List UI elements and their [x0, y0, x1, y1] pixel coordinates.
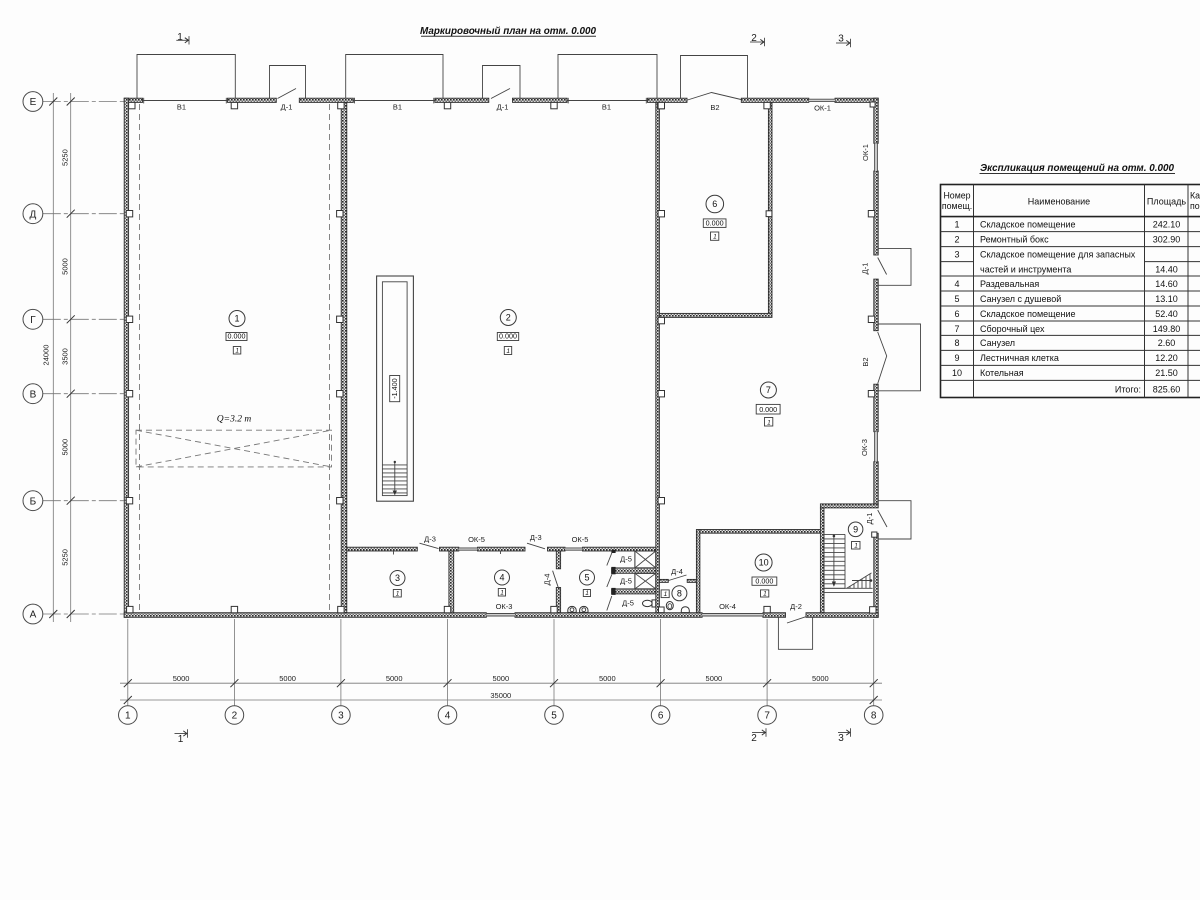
svg-text:Д-5: Д-5 [620, 554, 632, 563]
svg-text:Санузел: Санузел [980, 338, 1015, 348]
svg-text:Д: Д [30, 209, 37, 220]
svg-text:Раздевальная: Раздевальная [980, 279, 1039, 289]
svg-text:35000: 35000 [490, 691, 511, 700]
svg-text:Складское помещение для запасн: Складское помещение для запасных [980, 249, 1136, 259]
svg-text:В1: В1 [393, 103, 402, 112]
svg-text:В2: В2 [710, 103, 719, 112]
svg-text:14.40: 14.40 [1155, 264, 1178, 274]
svg-text:1: 1 [235, 347, 239, 354]
svg-text:Санузел с душевой: Санузел с душевой [980, 294, 1061, 304]
svg-text:10: 10 [952, 368, 962, 378]
svg-text:0.000: 0.000 [706, 219, 724, 228]
svg-text:2: 2 [751, 733, 757, 744]
svg-text:Д-4: Д-4 [671, 567, 683, 576]
svg-text:по: по [1190, 201, 1200, 211]
svg-text:ОК-4: ОК-4 [719, 602, 736, 611]
svg-text:-1.400: -1.400 [390, 378, 399, 398]
svg-text:Д-1: Д-1 [865, 513, 874, 525]
svg-text:2.60: 2.60 [1158, 338, 1176, 348]
svg-text:1: 1 [125, 711, 131, 722]
svg-text:помещ.: помещ. [942, 201, 972, 211]
svg-text:1: 1 [234, 314, 239, 324]
svg-text:5000: 5000 [386, 674, 403, 683]
svg-text:5250: 5250 [61, 149, 70, 166]
svg-text:Б: Б [30, 496, 37, 507]
svg-text:Q=3.2 т: Q=3.2 т [217, 415, 252, 425]
svg-text:5000: 5000 [492, 674, 509, 683]
svg-text:5000: 5000 [599, 674, 616, 683]
svg-text:825.60: 825.60 [1153, 385, 1181, 395]
svg-text:1: 1 [763, 590, 767, 597]
svg-text:ОК-5: ОК-5 [468, 535, 485, 544]
svg-text:Д-1: Д-1 [281, 103, 293, 112]
svg-text:В1: В1 [602, 103, 611, 112]
svg-text:ОК-5: ОК-5 [572, 535, 589, 544]
svg-text:Д-1: Д-1 [861, 263, 870, 275]
svg-text:В1: В1 [177, 103, 186, 112]
svg-text:1: 1 [396, 590, 400, 597]
svg-text:9: 9 [853, 525, 858, 535]
svg-text:2: 2 [954, 234, 959, 244]
svg-text:12.20: 12.20 [1155, 353, 1178, 363]
svg-text:302.90: 302.90 [1153, 234, 1181, 244]
svg-text:Площадь: Площадь [1147, 197, 1186, 207]
svg-text:24000: 24000 [42, 345, 51, 366]
svg-text:5250: 5250 [61, 549, 70, 566]
svg-text:5000: 5000 [173, 674, 190, 683]
svg-text:5: 5 [584, 573, 589, 583]
svg-text:Складское помещение: Складское помещение [980, 309, 1075, 319]
svg-text:Лестничная клетка: Лестничная клетка [980, 353, 1059, 363]
svg-text:6: 6 [658, 711, 664, 722]
svg-text:частей и инструмента: частей и инструмента [980, 264, 1071, 274]
svg-text:0.000: 0.000 [755, 577, 773, 586]
svg-text:Ка: Ка [1190, 191, 1200, 201]
svg-text:Д-3: Д-3 [530, 533, 542, 542]
svg-text:3: 3 [838, 34, 844, 45]
svg-text:1: 1 [713, 234, 717, 241]
svg-text:1: 1 [500, 589, 504, 596]
svg-text:Сборочный цех: Сборочный цех [980, 324, 1045, 334]
svg-text:Д-4: Д-4 [542, 574, 551, 586]
svg-text:1: 1 [664, 591, 668, 598]
svg-text:5000: 5000 [279, 674, 296, 683]
svg-text:5000: 5000 [61, 439, 70, 456]
svg-text:149.80: 149.80 [1153, 324, 1181, 334]
svg-text:2: 2 [232, 711, 238, 722]
svg-text:3: 3 [395, 573, 400, 583]
svg-text:Д-1: Д-1 [497, 103, 509, 112]
svg-text:ОК-1: ОК-1 [814, 104, 831, 113]
svg-text:Итого:: Итого: [1115, 385, 1141, 395]
svg-text:6: 6 [954, 309, 959, 319]
svg-text:Котельная: Котельная [980, 368, 1024, 378]
svg-text:Д-5: Д-5 [622, 598, 634, 607]
svg-text:6: 6 [712, 199, 717, 209]
svg-text:Ремонтный бокс: Ремонтный бокс [980, 234, 1049, 244]
svg-text:В2: В2 [861, 357, 870, 366]
svg-text:7: 7 [766, 385, 771, 395]
svg-text:Д-2: Д-2 [790, 602, 802, 611]
svg-text:Д-5: Д-5 [620, 576, 632, 585]
svg-text:В: В [30, 389, 37, 400]
svg-text:Экспликация помещений на отм.: Экспликация помещений на отм. 0.000 [980, 163, 1174, 174]
svg-text:3: 3 [338, 711, 344, 722]
svg-text:Номер: Номер [943, 191, 970, 201]
svg-text:5000: 5000 [812, 674, 829, 683]
svg-text:1: 1 [177, 32, 183, 43]
svg-text:2: 2 [506, 313, 511, 323]
svg-text:ОК-1: ОК-1 [861, 144, 870, 161]
svg-text:1: 1 [506, 348, 510, 355]
svg-text:3500: 3500 [61, 348, 70, 365]
svg-text:5: 5 [954, 294, 959, 304]
svg-text:1: 1 [585, 590, 589, 597]
svg-text:7: 7 [764, 711, 770, 722]
svg-text:4: 4 [499, 573, 504, 583]
svg-text:Маркировочный план на отм. 0.0: Маркировочный план на отм. 0.000 [420, 26, 596, 37]
svg-text:А: А [30, 610, 37, 621]
svg-text:Д-3: Д-3 [424, 535, 436, 544]
svg-text:5000: 5000 [706, 674, 723, 683]
svg-text:3: 3 [838, 733, 844, 744]
svg-text:52.40: 52.40 [1155, 309, 1178, 319]
svg-text:2: 2 [751, 33, 757, 44]
svg-text:1: 1 [767, 419, 771, 426]
svg-text:13.10: 13.10 [1155, 294, 1178, 304]
svg-text:9: 9 [954, 353, 959, 363]
svg-text:0.000: 0.000 [499, 332, 517, 341]
svg-text:242.10: 242.10 [1153, 219, 1181, 229]
svg-text:8: 8 [871, 711, 877, 722]
svg-text:8: 8 [954, 338, 959, 348]
svg-text:Наименование: Наименование [1028, 197, 1090, 207]
svg-text:7: 7 [954, 324, 959, 334]
svg-text:0.000: 0.000 [228, 332, 246, 341]
svg-text:14.60: 14.60 [1155, 279, 1178, 289]
svg-text:1: 1 [178, 734, 184, 745]
svg-text:8: 8 [677, 589, 682, 599]
svg-text:5: 5 [551, 711, 557, 722]
svg-text:4: 4 [954, 279, 959, 289]
svg-text:1: 1 [854, 542, 858, 549]
svg-text:ОК-3: ОК-3 [496, 602, 513, 611]
svg-text:Е: Е [30, 97, 37, 108]
svg-text:1: 1 [954, 219, 959, 229]
svg-text:5000: 5000 [61, 258, 70, 275]
svg-text:Складское помещение: Складское помещение [980, 219, 1075, 229]
svg-text:3: 3 [954, 249, 959, 259]
svg-text:0.000: 0.000 [759, 405, 777, 414]
svg-text:4: 4 [445, 711, 451, 722]
svg-text:10: 10 [759, 558, 769, 568]
svg-text:ОК-3: ОК-3 [860, 439, 869, 456]
svg-text:Г: Г [30, 315, 36, 326]
svg-text:21.50: 21.50 [1155, 368, 1178, 378]
